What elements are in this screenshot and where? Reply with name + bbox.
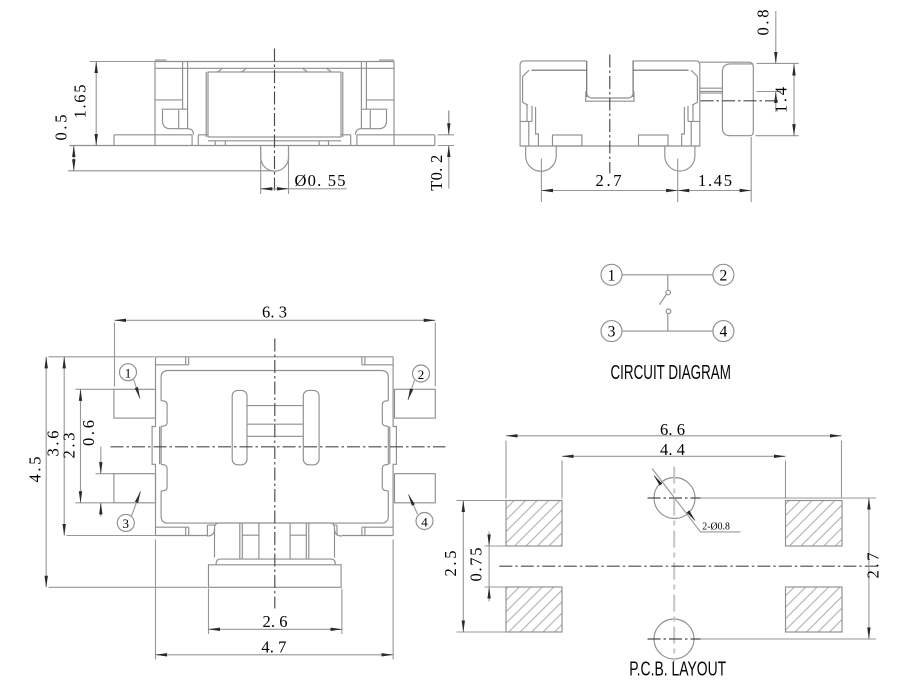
svg-text:2.3: 2.3 — [60, 433, 79, 459]
svg-text:Ø0. 55: Ø0. 55 — [295, 171, 346, 190]
svg-text:0.75: 0.75 — [467, 548, 486, 582]
svg-text:2: 2 — [418, 367, 425, 382]
svg-text:4: 4 — [720, 324, 728, 341]
svg-text:T0. 2: T0. 2 — [427, 155, 446, 191]
svg-text:4.5: 4.5 — [26, 457, 45, 483]
svg-text:4. 7: 4. 7 — [261, 637, 286, 656]
svg-text:6. 3: 6. 3 — [262, 303, 287, 322]
svg-text:CIRCUIT DIAGRAM: CIRCUIT DIAGRAM — [611, 362, 731, 384]
svg-text:1.45: 1.45 — [698, 171, 732, 190]
svg-text:0.6: 0.6 — [79, 420, 98, 446]
svg-text:2.7: 2.7 — [596, 171, 622, 190]
svg-text:4. 4: 4. 4 — [660, 440, 685, 459]
svg-text:1.4: 1.4 — [772, 87, 791, 113]
svg-text:4: 4 — [421, 514, 428, 529]
svg-text:2. 6: 2. 6 — [263, 612, 288, 631]
svg-text:0.5: 0.5 — [52, 115, 71, 141]
svg-text:1.65: 1.65 — [71, 85, 90, 119]
svg-text:2.7: 2.7 — [863, 553, 882, 579]
svg-text:3: 3 — [608, 324, 616, 341]
svg-text:1: 1 — [608, 267, 616, 284]
svg-text:2.5: 2.5 — [441, 551, 460, 577]
svg-text:6. 6: 6. 6 — [660, 420, 685, 439]
svg-text:2: 2 — [720, 267, 728, 284]
svg-text:2-Ø0.8: 2-Ø0.8 — [702, 522, 730, 533]
svg-text:0.8: 0.8 — [754, 10, 773, 36]
svg-text:P.C.B. LAYOUT: P.C.B. LAYOUT — [629, 659, 726, 681]
svg-text:1: 1 — [125, 366, 132, 381]
svg-text:3: 3 — [123, 516, 130, 531]
